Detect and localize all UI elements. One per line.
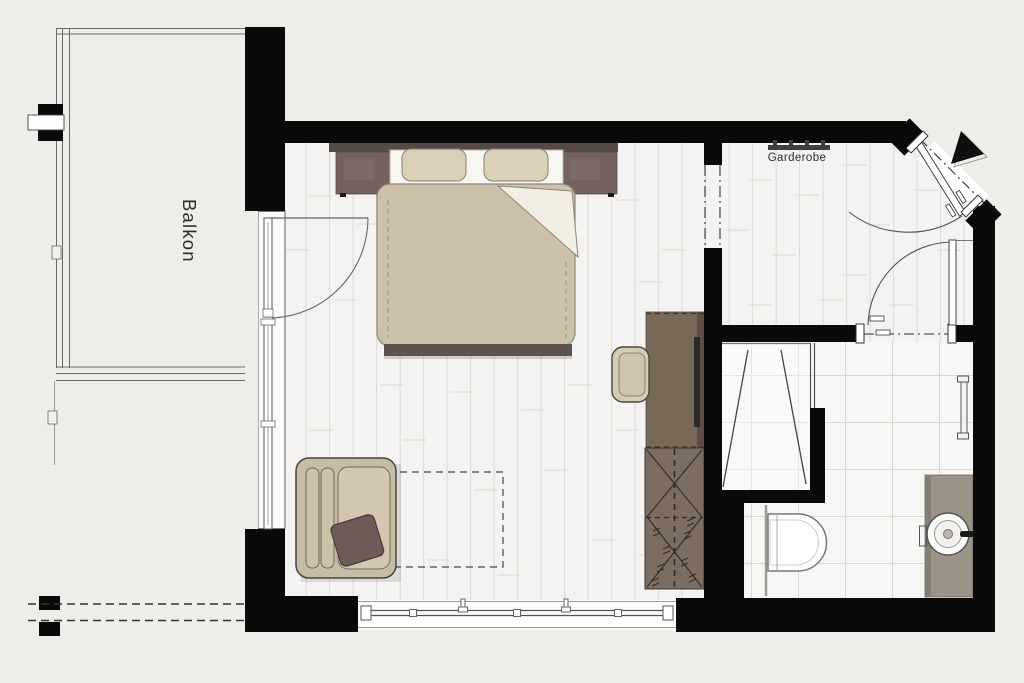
southwest-corner-wall	[245, 529, 285, 598]
desk-chair	[612, 347, 649, 402]
door-frame-post	[948, 324, 956, 343]
shower-wall-east	[810, 408, 825, 497]
shower-floor	[722, 343, 810, 490]
window-front	[358, 599, 676, 630]
north-wall	[285, 121, 906, 143]
railing-joint	[48, 411, 57, 424]
footboard	[384, 344, 572, 356]
divider-wall	[704, 248, 722, 598]
east-wall	[973, 206, 995, 632]
hall-bath-wall-left	[722, 325, 860, 342]
passage-floor	[704, 165, 722, 248]
faucet	[960, 531, 975, 537]
balcony-label: Balkon	[179, 199, 200, 263]
door-handle	[263, 309, 273, 317]
door-frame-post	[856, 324, 864, 343]
floor-plan-screenshot: Balkon	[0, 0, 1024, 683]
tv	[694, 337, 700, 427]
shower-wall-south	[722, 490, 825, 503]
pillow-left	[402, 149, 466, 181]
railing-joint	[52, 246, 61, 259]
toilet-nook-wall	[722, 503, 744, 598]
desk-sideboard	[646, 312, 704, 448]
washbasin-vanity	[920, 475, 976, 597]
window-post	[361, 606, 371, 620]
south-wall-west	[245, 596, 358, 632]
south-wall-bath	[676, 598, 995, 632]
divider-stub	[704, 140, 722, 165]
window-post	[663, 606, 673, 620]
wardrobe-closet	[645, 448, 704, 589]
door-leaf	[949, 240, 956, 325]
bed-shadow	[384, 356, 572, 359]
balcony-party-wall	[245, 27, 285, 211]
pillow-right	[484, 149, 548, 181]
floor-plan: Balkon	[0, 0, 1024, 683]
coat-rack-label: Garderobe	[768, 152, 827, 164]
